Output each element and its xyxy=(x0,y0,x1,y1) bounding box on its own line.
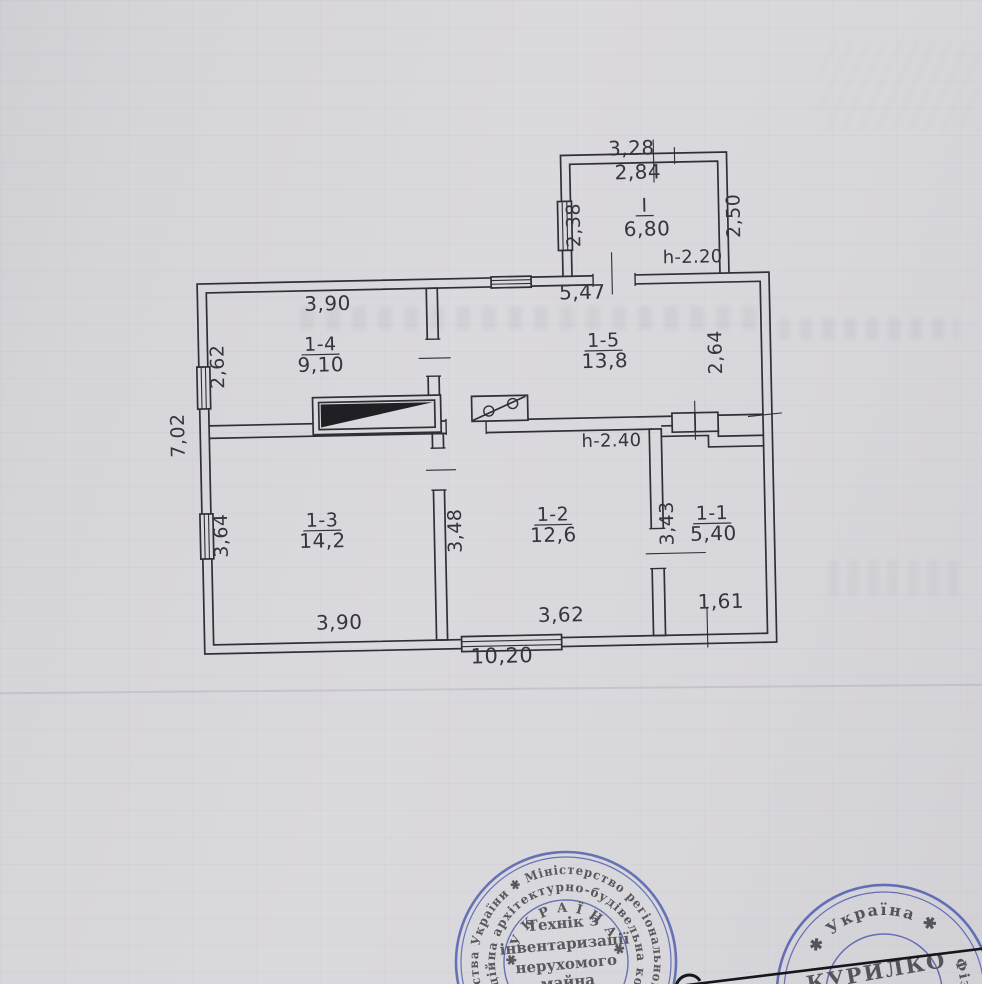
room-area-13: 14,2 xyxy=(299,528,346,553)
dim-room11-bottom: 1,61 xyxy=(697,589,744,614)
room-area-12: 12,6 xyxy=(530,522,577,547)
dim-room13-right: 3,48 xyxy=(444,508,467,553)
dim-vestibule-top-outer: 3,28 xyxy=(608,135,655,160)
stamp-ring-inner-right: Фізи xyxy=(949,956,977,984)
dim-room15-right: 2,64 xyxy=(704,330,727,375)
dim-room11-left: 3,43 xyxy=(656,501,679,546)
floor-plan: 3,28 2,84 2,38 2,50 I 6,80 h-2.20 3,90 5… xyxy=(161,133,787,675)
dim-room12-bottom: 3,62 xyxy=(538,602,585,627)
stamp-commission: го господарства України ✱ Міністерство р… xyxy=(447,843,685,984)
room-area-vestibule: 6,80 xyxy=(624,216,671,241)
drawing-layer: 3,28 2,84 2,38 2,50 I 6,80 h-2.20 3,90 5… xyxy=(0,0,982,984)
stove xyxy=(312,395,441,435)
dim-room13-left: 3,64 xyxy=(210,513,233,558)
room-area-15: 13,8 xyxy=(581,348,628,373)
dim-room13-bottom: 3,90 xyxy=(316,610,363,635)
room-id-vestibule: I xyxy=(641,195,648,217)
svg-text:Фізи: Фізи xyxy=(949,956,977,984)
main-building-walls xyxy=(197,272,777,654)
stamp-name: КУРИЛКО xyxy=(804,947,948,984)
dim-room14-left: 2,62 xyxy=(206,344,229,389)
room-area-14: 9,10 xyxy=(297,352,344,377)
dim-room14-top: 3,90 xyxy=(304,291,351,316)
height-note-main: h-2.40 xyxy=(581,430,641,452)
scanned-floor-plan-page: 3,28 2,84 2,38 2,50 I 6,80 h-2.20 3,90 5… xyxy=(0,0,982,984)
dim-bottom-total: 10,20 xyxy=(470,643,533,668)
dim-room15-top: 5,47 xyxy=(559,280,606,305)
dim-left-total: 7,02 xyxy=(167,413,190,458)
window xyxy=(491,275,531,289)
stamp-personal: янець Киї ✱ Україна ✱ ець Фізи КУРИЛКО xyxy=(760,868,982,984)
dim-vestibule-right: 2,50 xyxy=(722,193,745,238)
dim-vestibule-top-inner: 2,84 xyxy=(614,159,661,184)
dim-vestibule-left: 2,38 xyxy=(562,203,585,248)
room-area-11: 5,40 xyxy=(690,521,737,546)
height-note-vestibule: h-2.20 xyxy=(663,246,723,268)
gas-stove xyxy=(472,395,529,421)
